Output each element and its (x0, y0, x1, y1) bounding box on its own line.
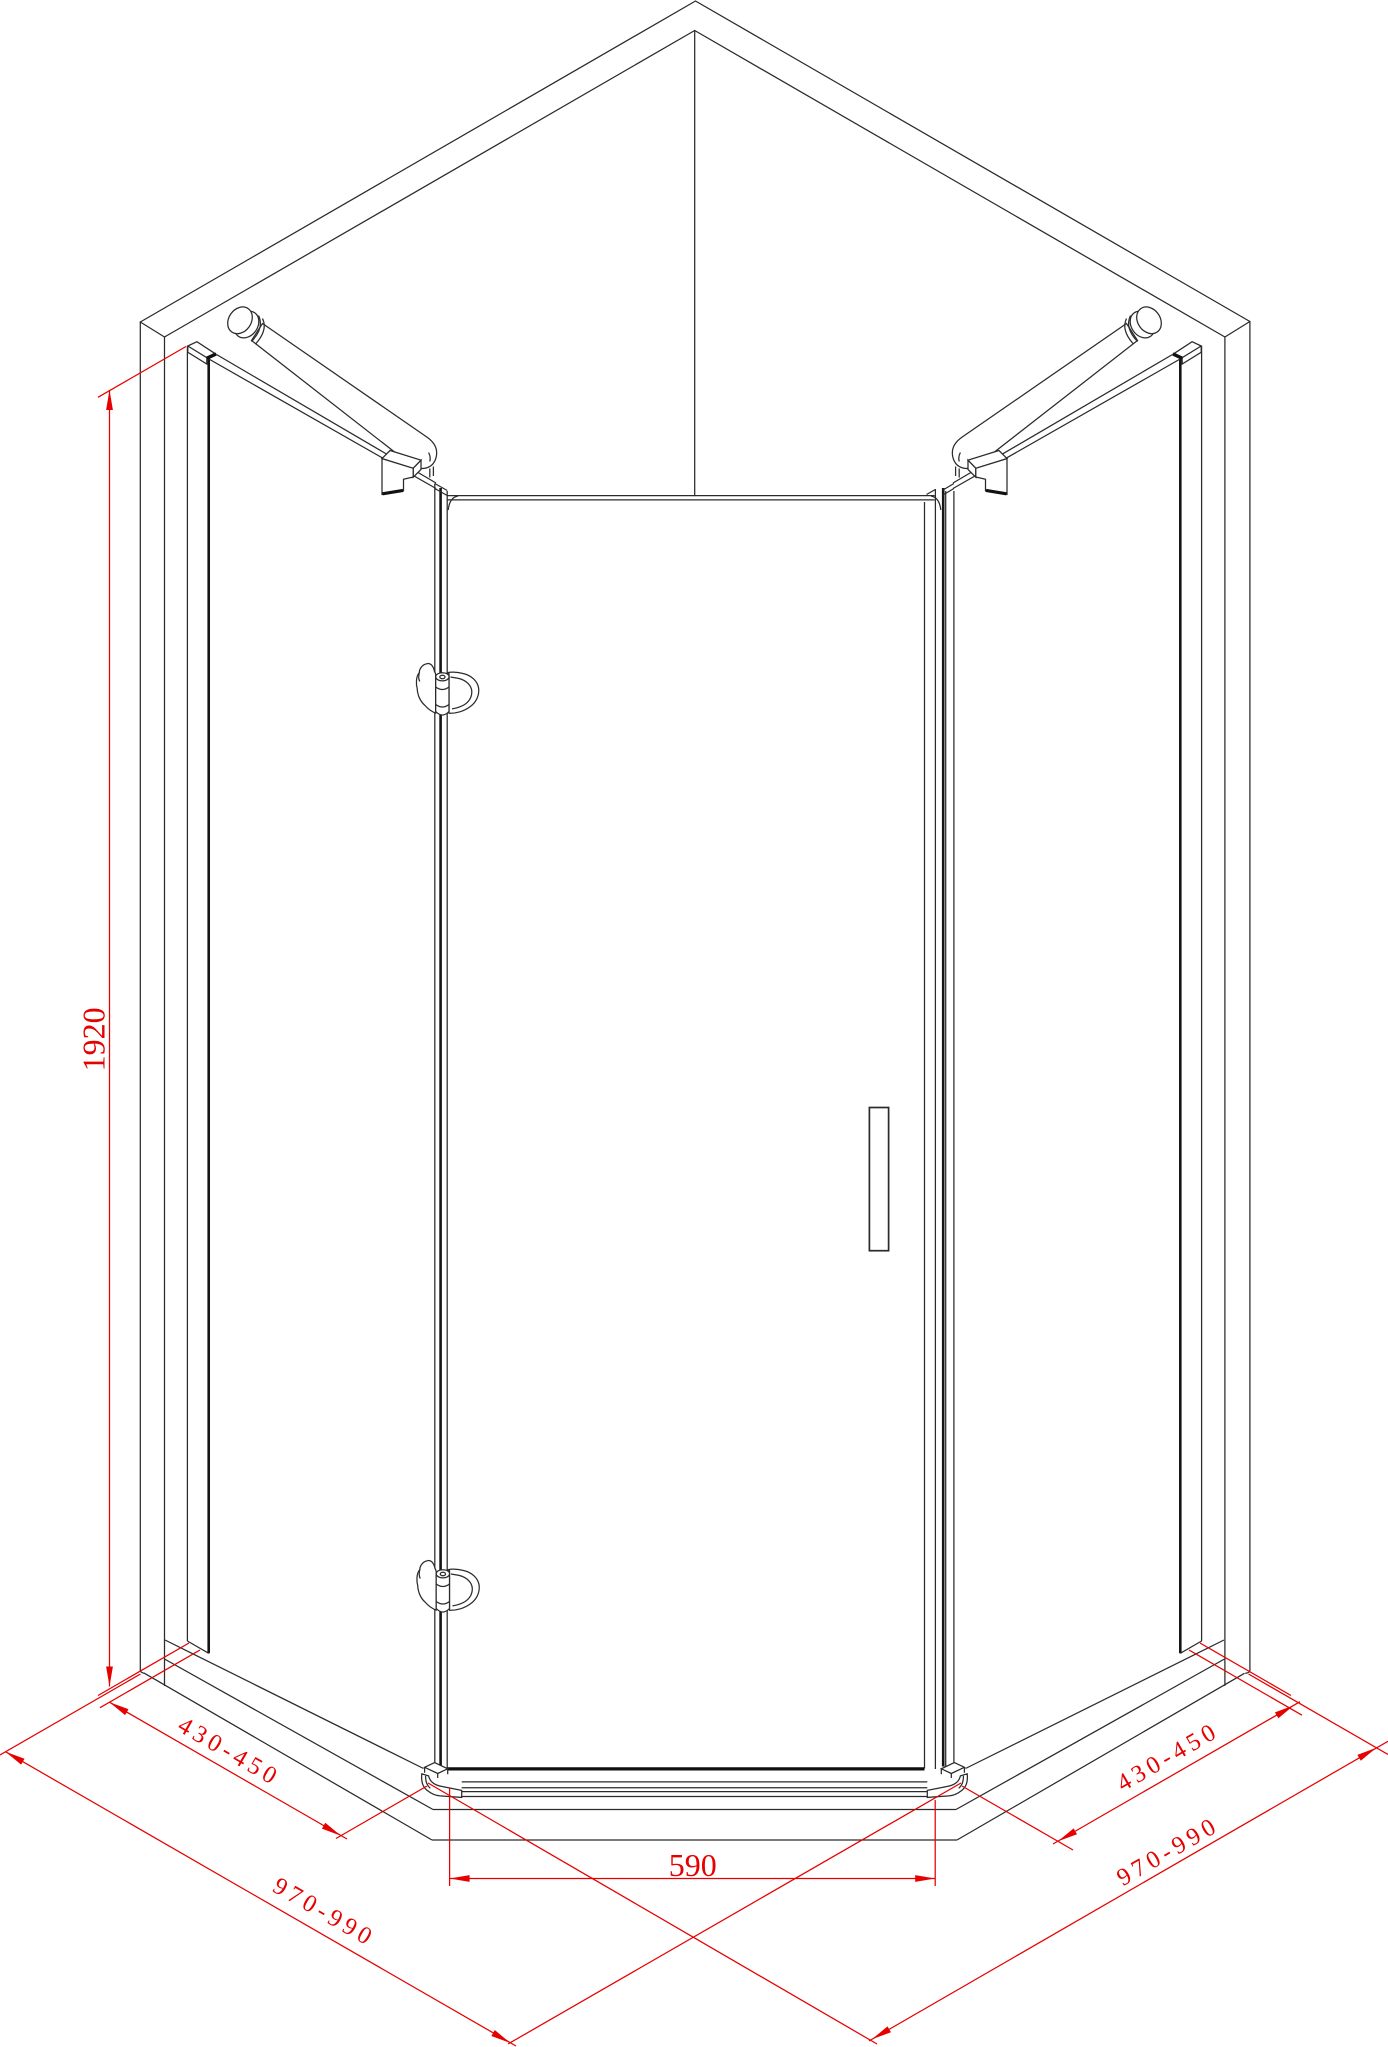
svg-text:430-450: 430-450 (173, 1712, 285, 1792)
svg-text:590: 590 (669, 1847, 717, 1883)
svg-text:1920: 1920 (76, 1007, 112, 1071)
svg-text:430-450: 430-450 (1112, 1717, 1224, 1797)
svg-text:970-990: 970-990 (1112, 1811, 1224, 1891)
